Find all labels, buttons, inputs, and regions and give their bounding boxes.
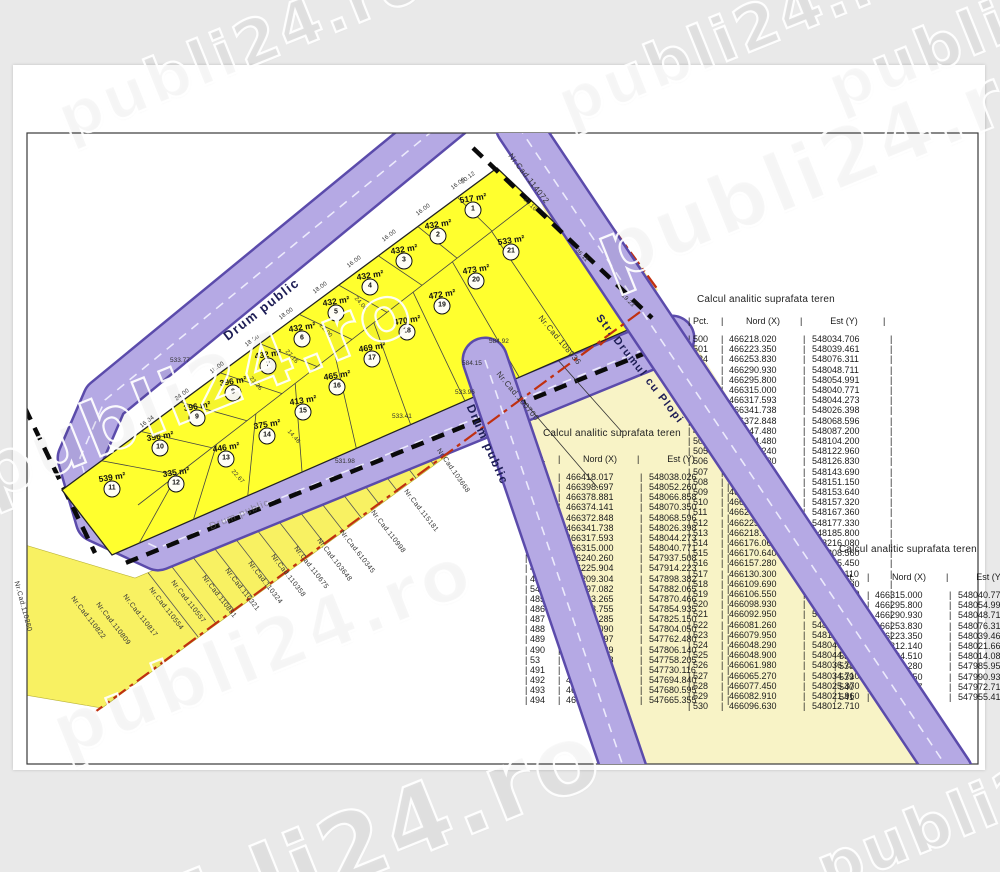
- table-row: |482|466225.904|547914.223|: [525, 563, 732, 573]
- table-title: Calcul analitic suprafata teren: [697, 294, 835, 305]
- column-separator: |: [727, 482, 732, 492]
- header-cell: 547758.205: [645, 655, 727, 665]
- header-cell: 466061.980: [726, 660, 803, 670]
- table-row: |536|466212.140|548021.661|: [834, 641, 1000, 651]
- table-row: |492|465955.944|547694.840|: [525, 675, 732, 685]
- header-cell: 466109.690: [726, 579, 803, 589]
- table-row: |477|466372.848|548068.596|: [525, 513, 732, 523]
- header-cell: 466398.697: [563, 482, 640, 492]
- table-row: |489|466084.597|547762.480|: [525, 634, 732, 644]
- header-cell: 548039.461: [954, 631, 1000, 641]
- header-cell: 548014.081: [954, 651, 1000, 661]
- column-separator: |: [890, 558, 895, 568]
- header-cell: Nord (X): [563, 454, 637, 464]
- header-cell: 466232.040: [726, 507, 803, 517]
- header-cell: 478: [530, 523, 558, 533]
- header-cell: 466048.900: [726, 650, 803, 660]
- header-cell: 547694.840: [645, 675, 727, 685]
- header-cell: 466418.017: [563, 472, 640, 482]
- header-cell: 492: [530, 675, 558, 685]
- header-cell: 490: [530, 645, 558, 655]
- column-separator: |: [727, 472, 732, 482]
- column-separator: |: [890, 497, 895, 507]
- table-row: |434|466253.830|548076.311|: [834, 621, 1000, 631]
- header-cell: 503: [693, 375, 721, 385]
- header-cell: 548143.690: [808, 467, 890, 477]
- header-cell: 466183.265: [563, 594, 640, 604]
- header-cell: 547937.508: [645, 553, 727, 563]
- header-cell: 466183.547: [872, 682, 949, 692]
- table-row: |480|466315.000|548040.771|: [525, 543, 732, 553]
- header-cell: 466243.150: [726, 497, 803, 507]
- header-cell: 547985.951: [954, 661, 1000, 671]
- table-row: |540|466183.547|547972.716|: [834, 682, 1000, 692]
- header-cell: 466225.980: [726, 518, 803, 528]
- header-cell: 466253.830: [872, 621, 949, 631]
- header-cell: 434: [839, 621, 867, 631]
- header-cell: 466023.820: [563, 695, 640, 705]
- column-separator: |: [890, 528, 895, 538]
- column-separator: |: [890, 365, 895, 375]
- column-separator: |: [890, 385, 895, 395]
- header-cell: 474: [530, 472, 558, 482]
- header-cell: 548126.830: [808, 456, 890, 466]
- header-cell: 548054.991: [954, 600, 1000, 610]
- header-cell: 466253.830: [726, 354, 803, 364]
- table-row: |487|466155.285|547825.150|: [525, 614, 732, 624]
- table-row: |502|466290.930|548048.711|: [688, 365, 895, 375]
- header-cell: 466315.000: [872, 590, 949, 600]
- header-cell: 544: [530, 584, 558, 594]
- header-cell: 466295.800: [872, 600, 949, 610]
- header-cell: 466170.640: [726, 548, 803, 558]
- column-separator: |: [890, 395, 895, 405]
- table-row: |488|466139.090|547804.050|: [525, 624, 732, 634]
- header-cell: 548034.706: [808, 334, 890, 344]
- header-cell: 466347.480: [726, 426, 803, 436]
- header-cell: 548026.398: [808, 405, 890, 415]
- table-row: |476|466378.881|548066.858|: [525, 492, 732, 502]
- header-cell: 465994.024: [563, 685, 640, 695]
- column-separator: |: [890, 354, 895, 364]
- table-header: |Pct.|Nord (X)|Est (Y)|: [834, 572, 1000, 582]
- header-cell: 548040.771: [645, 543, 727, 553]
- column-separator: |: [890, 446, 895, 456]
- column-separator: |: [890, 436, 895, 446]
- header-cell: 466212.140: [872, 641, 949, 651]
- header-cell: 466266.780: [726, 477, 803, 487]
- table-row: |477|466372.848|548068.596|: [688, 416, 895, 426]
- header-cell: 548076.311: [954, 621, 1000, 631]
- column-separator: |: [727, 492, 732, 502]
- header-cell: 548044.273: [808, 395, 890, 405]
- table-row: |478|466341.738|548026.398|: [525, 523, 732, 533]
- table-row: |501|466223.350|548039.461|: [834, 631, 1000, 641]
- table-row: |500|466218.020|548034.706|: [688, 334, 895, 344]
- header-cell: 466081.260: [726, 620, 803, 630]
- header-cell: 466372.848: [563, 513, 640, 523]
- header-cell: 501: [693, 344, 721, 354]
- header-cell: 466082.910: [726, 691, 803, 701]
- header-cell: 504: [693, 436, 721, 446]
- header-cell: 548054.991: [808, 375, 890, 385]
- table-row: |503|466295.800|548054.991|: [834, 600, 1000, 610]
- header-cell: 466378.881: [563, 492, 640, 502]
- header-cell: 466048.290: [726, 640, 803, 650]
- header-cell: 481: [530, 553, 558, 563]
- column-separator: |: [727, 695, 732, 705]
- header-cell: 466287.230: [726, 456, 803, 466]
- header-cell: 466275.260: [726, 467, 803, 477]
- column-separator: |: [727, 553, 732, 563]
- header-cell: 547870.466: [645, 594, 727, 604]
- header-cell: 548066.858: [645, 492, 727, 502]
- column-separator: |: [727, 523, 732, 533]
- column-separator: |: [727, 675, 732, 685]
- column-separator: |: [727, 624, 732, 634]
- header-cell: 466315.000: [726, 385, 803, 395]
- header-cell: 548040.771: [954, 590, 1000, 600]
- table-row: |480|466315.000|548040.771|: [834, 590, 1000, 600]
- header-cell: 475: [530, 482, 558, 492]
- header-cell: 53: [530, 655, 558, 665]
- table-row: |478|466341.738|548026.398|: [688, 405, 895, 415]
- header-cell: 466223.350: [726, 344, 803, 354]
- header-cell: 491: [530, 665, 558, 675]
- header-cell: 547972.716: [954, 682, 1000, 692]
- column-separator: |: [890, 334, 895, 344]
- header-cell: 466195.150: [872, 672, 949, 682]
- header-cell: 538: [839, 661, 867, 671]
- header-cell: 466374.141: [563, 502, 640, 512]
- header-cell: 435: [693, 426, 721, 436]
- header-cell: 547825.150: [645, 614, 727, 624]
- header-cell: 466324.480: [726, 436, 803, 446]
- header-cell: 548048.711: [808, 365, 890, 375]
- column-separator: |: [890, 467, 895, 477]
- column-separator: |: [890, 426, 895, 436]
- header-cell: 477: [693, 416, 721, 426]
- header-cell: 548068.596: [808, 416, 890, 426]
- table-row: |501|466223.350|548039.461|: [688, 344, 895, 354]
- header-cell: 543: [530, 502, 558, 512]
- column-separator: |: [727, 685, 732, 695]
- table-row: |491|465940.066|547730.116|: [525, 665, 732, 675]
- header-cell: 547680.595: [645, 685, 727, 695]
- header-cell: 547955.414: [954, 692, 1000, 702]
- header-cell: 548044.273: [645, 533, 727, 543]
- header-cell: 466098.930: [726, 599, 803, 609]
- column-separator: |: [727, 604, 732, 614]
- table-row: |483|466209.304|547898.382|: [525, 574, 732, 584]
- column-separator: |: [890, 375, 895, 385]
- header-cell: 466157.280: [726, 558, 803, 568]
- header-cell: 548068.596: [645, 513, 727, 523]
- table-row: |493|465994.024|547680.595|: [525, 685, 732, 695]
- header-cell: 547762.480: [645, 634, 727, 644]
- header-cell: 489: [530, 634, 558, 644]
- column-separator: |: [727, 563, 732, 573]
- header-cell: 547990.931: [954, 672, 1000, 682]
- table-row: |490|465983.889|547806.140|: [525, 645, 732, 655]
- column-separator: |: [720, 454, 725, 464]
- column-separator: |: [890, 518, 895, 528]
- table-row: |479|466317.593|548044.273|: [688, 395, 895, 405]
- header-cell: 466176.060: [726, 538, 803, 548]
- header-cell: Pct.: [530, 454, 558, 464]
- header-cell: 465945.888: [563, 655, 640, 665]
- header-cell: 485: [530, 594, 558, 604]
- column-separator: |: [727, 533, 732, 543]
- header-cell: 547882.065: [645, 584, 727, 594]
- header-cell: 548012.710: [808, 701, 890, 711]
- header-cell: 479: [693, 395, 721, 405]
- header-cell: 466254.140: [726, 487, 803, 497]
- column-separator: |: [727, 665, 732, 675]
- header-cell: 466207.280: [872, 661, 949, 671]
- table-row: |434|466253.830|548076.311|: [688, 354, 895, 364]
- header-cell: Pct.: [693, 316, 721, 326]
- header-cell: 482: [530, 563, 558, 573]
- table-row: |504|466324.480|548104.200|: [688, 436, 895, 446]
- header-cell: 548052.260: [645, 482, 727, 492]
- table-row: |53|465945.888|547758.205|: [525, 655, 732, 665]
- header-cell: 548038.026: [645, 472, 727, 482]
- header-cell: 547804.050: [645, 624, 727, 634]
- header-cell: 548070.350: [645, 502, 727, 512]
- table-row: |486|466168.755|547854.935|: [525, 604, 732, 614]
- header-cell: 541: [839, 692, 867, 702]
- header-cell: 480: [693, 385, 721, 395]
- header-cell: 466240.260: [563, 553, 640, 563]
- header-cell: 466225.904: [563, 563, 640, 573]
- header-cell: 479: [530, 533, 558, 543]
- header-cell: Est (Y): [642, 454, 720, 464]
- header-cell: 548021.661: [954, 641, 1000, 651]
- header-cell: 466295.800: [726, 375, 803, 385]
- header-cell: 466130.300: [726, 569, 803, 579]
- header-cell: 466168.755: [563, 604, 640, 614]
- column-separator: |: [727, 634, 732, 644]
- header-cell: 466299.240: [726, 446, 803, 456]
- header-cell: 466290.930: [726, 365, 803, 375]
- header-cell: 466223.350: [872, 631, 949, 641]
- header-cell: 478: [693, 405, 721, 415]
- header-cell: 466096.630: [726, 701, 803, 711]
- column-separator: |: [890, 344, 895, 354]
- table-row: |480|466315.000|548040.771|: [688, 385, 895, 395]
- header-cell: 548039.461: [808, 344, 890, 354]
- coordinate-tables-layer: Calcul analitic suprafata teren|Pct.|Nor…: [0, 0, 1000, 872]
- header-cell: 503: [839, 600, 867, 610]
- header-cell: 547806.140: [645, 645, 727, 655]
- header-cell: 548026.398: [645, 523, 727, 533]
- header-cell: 548076.311: [808, 354, 890, 364]
- header-cell: 466092.950: [726, 609, 803, 619]
- table-row: |541|466170.038|547955.414|: [834, 692, 1000, 702]
- table-row: |538|466207.280|547985.951|: [834, 661, 1000, 671]
- column-separator: |: [890, 456, 895, 466]
- header-cell: Est (Y): [951, 572, 1000, 582]
- column-separator: |: [890, 507, 895, 517]
- header-cell: 466290.930: [872, 610, 949, 620]
- column-separator: |: [727, 502, 732, 512]
- cadastral-plan-page: Calcul analitic suprafata teren|Pct.|Nor…: [0, 0, 1000, 872]
- header-cell: 466218.020: [726, 334, 803, 344]
- table-row: |503|466295.800|548054.991|: [688, 375, 895, 385]
- table-header: |Pct.|Nord (X)|Est (Y)|: [688, 316, 888, 326]
- header-cell: 486: [530, 604, 558, 614]
- table-row: |543|466374.141|548070.350|: [525, 502, 732, 512]
- header-cell: 488: [530, 624, 558, 634]
- header-cell: 548153.640: [808, 487, 890, 497]
- table-title: Calcul analitic suprafata teren: [839, 544, 977, 555]
- table-row: |474|466418.017|548038.026|: [525, 472, 732, 482]
- header-cell: 548185.800: [808, 528, 890, 538]
- header-cell: 548157.320: [808, 497, 890, 507]
- table-row: |485|466183.265|547870.466|: [525, 594, 732, 604]
- table-row: |502|466290.930|548048.711|: [834, 610, 1000, 620]
- header-cell: 466341.738: [726, 405, 803, 415]
- column-separator: |: [890, 477, 895, 487]
- header-cell: 466317.593: [726, 395, 803, 405]
- column-separator: |: [890, 416, 895, 426]
- header-cell: 548195.450: [808, 558, 890, 568]
- column-separator: |: [727, 513, 732, 523]
- column-separator: |: [727, 594, 732, 604]
- header-cell: 547914.223: [645, 563, 727, 573]
- header-cell: 480: [839, 590, 867, 600]
- header-cell: Nord (X): [872, 572, 946, 582]
- header-cell: 547854.935: [645, 604, 727, 614]
- header-cell: 466079.950: [726, 630, 803, 640]
- header-cell: 501: [839, 631, 867, 641]
- header-cell: 477: [530, 513, 558, 523]
- header-cell: 548177.330: [808, 518, 890, 528]
- header-cell: Pct.: [839, 572, 867, 582]
- column-separator: |: [727, 645, 732, 655]
- column-separator: |: [890, 487, 895, 497]
- table-row: |539|466195.150|547990.931|: [834, 672, 1000, 682]
- column-separator: |: [727, 543, 732, 553]
- column-separator: |: [890, 701, 895, 711]
- column-separator: |: [727, 584, 732, 594]
- header-cell: 466084.597: [563, 634, 640, 644]
- header-cell: 466065.270: [726, 671, 803, 681]
- header-cell: 548151.150: [808, 477, 890, 487]
- header-cell: 466209.304: [563, 574, 640, 584]
- table-row: |475|466398.697|548052.260|: [525, 482, 732, 492]
- header-cell: 548122.960: [808, 446, 890, 456]
- header-cell: Nord (X): [726, 316, 800, 326]
- header-cell: 537: [839, 651, 867, 661]
- table-row: |544|466197.082|547882.065|: [525, 584, 732, 594]
- header-cell: 466139.090: [563, 624, 640, 634]
- table-row: |435|466347.480|548087.200|: [688, 426, 895, 436]
- header-cell: 539: [839, 672, 867, 682]
- table-title: Calcul analitic suprafata teren: [543, 428, 681, 439]
- header-cell: 466315.000: [563, 543, 640, 553]
- header-cell: 502: [693, 365, 721, 375]
- column-separator: |: [883, 316, 888, 326]
- header-cell: 548104.200: [808, 436, 890, 446]
- column-separator: |: [727, 655, 732, 665]
- header-cell: 502: [839, 610, 867, 620]
- column-separator: |: [727, 574, 732, 584]
- table-row: |481|466240.260|547937.508|: [525, 553, 732, 563]
- header-cell: 466317.593: [563, 533, 640, 543]
- table-row: |537|466224.510|548014.081|: [834, 651, 1000, 661]
- table-header: |Pct.|Nord (X)|Est (Y)|: [525, 454, 725, 464]
- column-separator: |: [890, 405, 895, 415]
- header-cell: 548040.771: [808, 385, 890, 395]
- header-cell: 476: [530, 492, 558, 502]
- header-cell: 493: [530, 685, 558, 695]
- header-cell: 494: [530, 695, 558, 705]
- header-cell: 465940.066: [563, 665, 640, 675]
- header-cell: 465983.889: [563, 645, 640, 655]
- header-cell: 466224.510: [872, 651, 949, 661]
- header-cell: 540: [839, 682, 867, 692]
- header-cell: 500: [693, 334, 721, 344]
- header-cell: 466372.848: [726, 416, 803, 426]
- header-cell: 547665.355: [645, 695, 727, 705]
- header-cell: 434: [693, 354, 721, 364]
- header-cell: 548087.200: [808, 426, 890, 436]
- header-cell: 483: [530, 574, 558, 584]
- header-cell: 466341.738: [563, 523, 640, 533]
- header-cell: 547730.116: [645, 665, 727, 675]
- table-row: |479|466317.593|548044.273|: [525, 533, 732, 543]
- header-cell: 466106.550: [726, 589, 803, 599]
- header-cell: 480: [530, 543, 558, 553]
- header-cell: 548167.360: [808, 507, 890, 517]
- header-cell: 466218.700: [726, 528, 803, 538]
- header-cell: Est (Y): [805, 316, 883, 326]
- header-cell: 536: [839, 641, 867, 651]
- header-cell: 465955.944: [563, 675, 640, 685]
- header-cell: 466155.285: [563, 614, 640, 624]
- header-cell: 548048.711: [954, 610, 1000, 620]
- column-separator: |: [727, 614, 732, 624]
- header-cell: 466197.082: [563, 584, 640, 594]
- header-cell: 466170.038: [872, 692, 949, 702]
- header-cell: 466077.450: [726, 681, 803, 691]
- table-row: |494|466023.820|547665.355|: [525, 695, 732, 705]
- header-cell: 487: [530, 614, 558, 624]
- header-cell: 547898.382: [645, 574, 727, 584]
